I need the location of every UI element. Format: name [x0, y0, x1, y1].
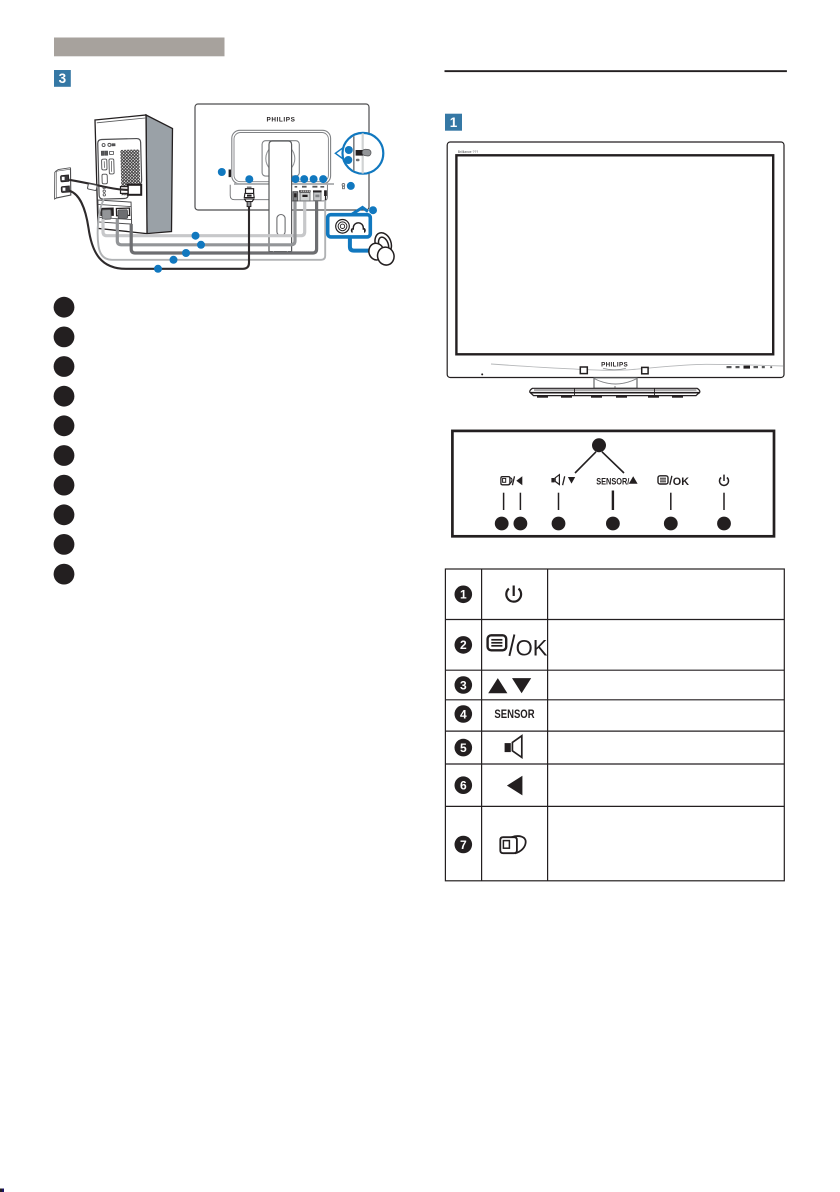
svg-text:OK: OK [673, 476, 689, 488]
svg-text:6: 6 [460, 779, 467, 793]
svg-text:2: 2 [460, 638, 467, 652]
svg-text:4: 4 [460, 707, 467, 721]
svg-text:Brilliance ???: Brilliance ??? [458, 150, 478, 154]
svg-text:3: 3 [59, 71, 67, 86]
svg-text:7: 7 [460, 838, 467, 852]
svg-text:OK: OK [516, 635, 548, 660]
svg-text:1: 1 [460, 588, 467, 602]
svg-text:1: 1 [450, 115, 458, 130]
svg-text:PHILIPS: PHILIPS [601, 361, 628, 368]
svg-text:3: 3 [460, 678, 467, 692]
svg-text:SENSOR/: SENSOR/ [596, 475, 630, 486]
svg-text:PHILIPS: PHILIPS [266, 116, 295, 123]
svg-text:5: 5 [460, 741, 467, 755]
svg-text:SENSOR: SENSOR [494, 708, 534, 721]
